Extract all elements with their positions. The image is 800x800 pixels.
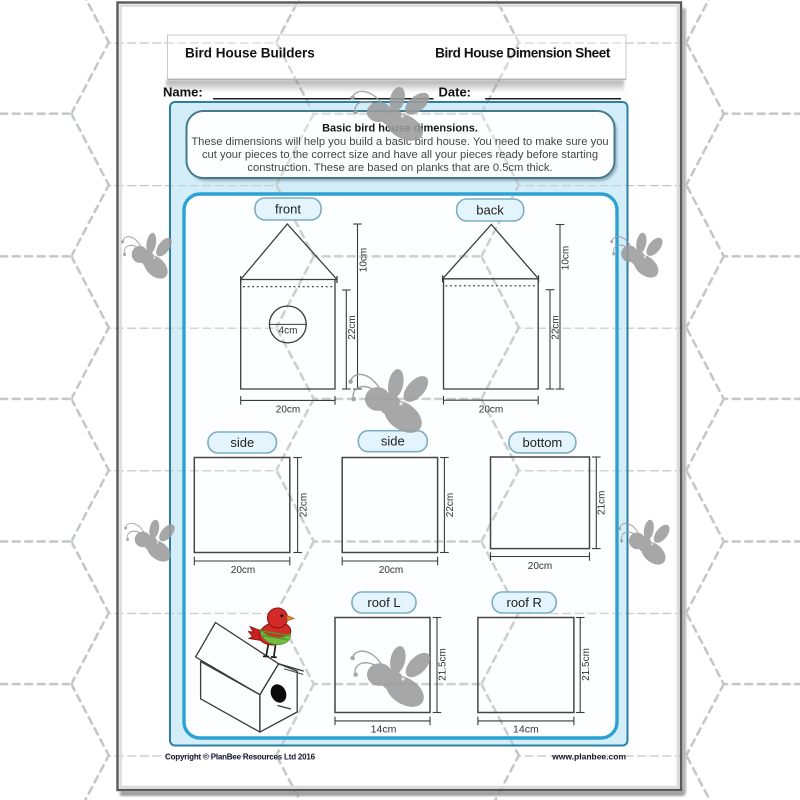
svg-text:side: side (230, 435, 254, 450)
svg-text:22cm: 22cm (347, 315, 358, 339)
svg-text:20cm: 20cm (276, 405, 300, 416)
svg-text:construction. These are based: construction. These are based on planks … (247, 162, 552, 174)
svg-text:20cm: 20cm (479, 404, 503, 415)
svg-text:front: front (275, 202, 301, 217)
svg-text:Copyright © PlanBee Resources: Copyright © PlanBee Resources Ltd 2016 (165, 753, 316, 762)
svg-text:roof R: roof R (506, 595, 541, 610)
svg-text:14cm: 14cm (371, 724, 397, 736)
svg-text:Bird House Dimension Sheet: Bird House Dimension Sheet (435, 46, 611, 61)
svg-text:22cm: 22cm (445, 493, 456, 517)
svg-text:Bird House Builders: Bird House Builders (185, 46, 315, 61)
svg-text:10cm: 10cm (359, 248, 370, 272)
svg-text:4cm: 4cm (279, 326, 298, 337)
svg-text:cut your pieces to the correct: cut your pieces to the correct size and … (202, 149, 598, 161)
svg-text:21cm: 21cm (597, 491, 608, 515)
svg-text:20cm: 20cm (231, 565, 255, 576)
svg-text:20cm: 20cm (379, 565, 403, 576)
svg-text:Date:: Date: (439, 85, 472, 100)
svg-text:back: back (476, 203, 504, 218)
svg-text:bottom: bottom (523, 435, 563, 450)
svg-text:14cm: 14cm (513, 724, 539, 736)
svg-text:side: side (381, 434, 405, 449)
svg-text:20cm: 20cm (528, 561, 552, 572)
svg-text:10cm: 10cm (561, 246, 572, 270)
svg-text:roof L: roof L (367, 595, 400, 610)
svg-text:21.5cm: 21.5cm (438, 648, 449, 681)
svg-text:21.5cm: 21.5cm (581, 648, 592, 681)
svg-text:22cm: 22cm (298, 493, 309, 517)
svg-text:www.planbee.com: www.planbee.com (551, 752, 626, 762)
svg-text:Name:: Name: (163, 85, 203, 100)
